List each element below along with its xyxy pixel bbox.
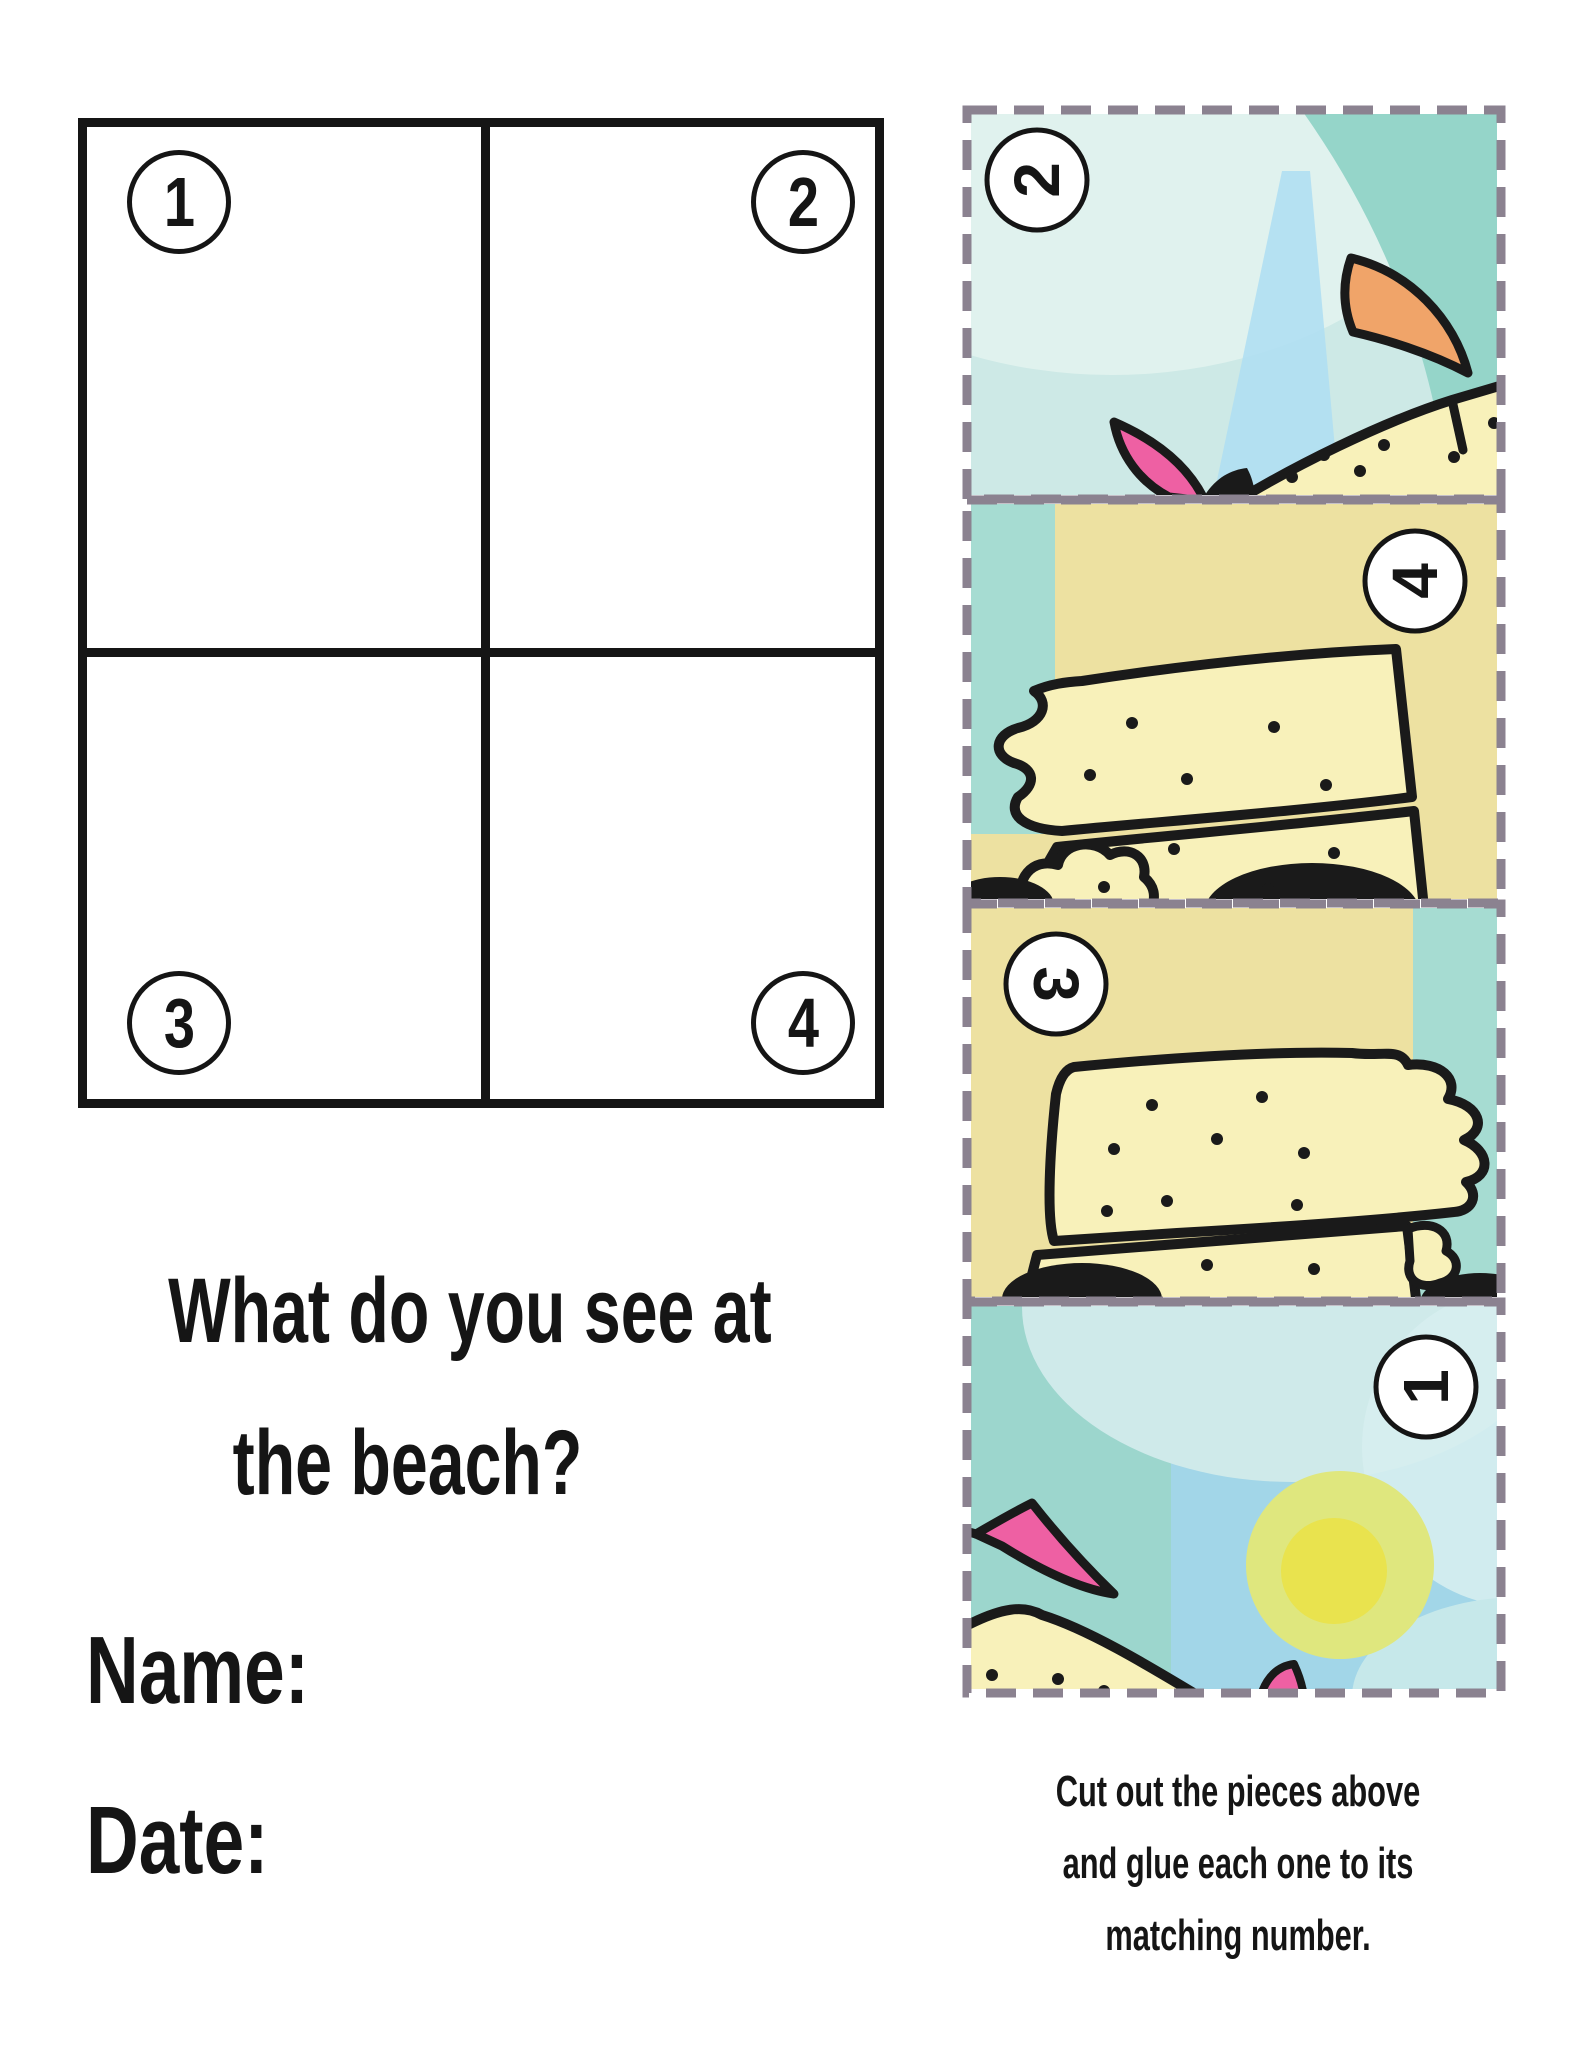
piece-number-4: 4	[1379, 563, 1451, 599]
cutout-piece-3: 3	[962, 899, 1506, 1306]
cutout-piece-2: 2	[962, 105, 1506, 504]
instructions-text: Cut out the pieces above and glue each o…	[960, 1756, 1516, 1972]
grid-divider-horizontal	[87, 648, 875, 657]
piece-1-artwork: 1	[962, 1297, 1506, 1698]
sun-icon	[1281, 1518, 1387, 1624]
worksheet-title: What do you see at the beach?	[75, 1235, 740, 1539]
cutout-piece-1: 1	[962, 1297, 1506, 1698]
title-line-2: the beach?	[168, 1387, 647, 1539]
piece-4-artwork: 4	[962, 495, 1506, 908]
grid-cell-3-number-badge: 3	[127, 971, 231, 1075]
grid-number-3: 3	[163, 988, 194, 1058]
instructions-line-2: and glue each one to its	[1043, 1828, 1432, 1900]
name-field-label: Name:	[86, 1616, 309, 1726]
piece-3-artwork: 3	[962, 899, 1506, 1306]
worksheet-page: 1 2 3 4 What do you see at the beach? Na…	[0, 0, 1583, 2048]
grid-number-4: 4	[787, 988, 818, 1058]
cutout-piece-4: 4	[962, 495, 1506, 908]
piece-2-artwork: 2	[962, 105, 1506, 504]
grid-divider-vertical	[481, 127, 490, 1099]
piece-number-3: 3	[1020, 966, 1092, 1002]
paste-grid: 1 2 3 4	[78, 118, 884, 1108]
grid-cell-2-number-badge: 2	[751, 150, 855, 254]
grid-number-1: 1	[163, 167, 194, 237]
grid-number-2: 2	[787, 167, 818, 237]
piece-number-2: 2	[1001, 162, 1073, 198]
grid-cell-4-number-badge: 4	[751, 971, 855, 1075]
grid-cell-1-number-badge: 1	[127, 150, 231, 254]
melted-sand-lobe	[1408, 1225, 1456, 1285]
title-line-1: What do you see at	[168, 1235, 647, 1387]
instructions-line-3: matching number.	[1043, 1900, 1432, 1972]
instructions-line-1: Cut out the pieces above	[1043, 1756, 1432, 1828]
piece-number-1: 1	[1390, 1369, 1462, 1405]
date-field-label: Date:	[86, 1786, 268, 1896]
